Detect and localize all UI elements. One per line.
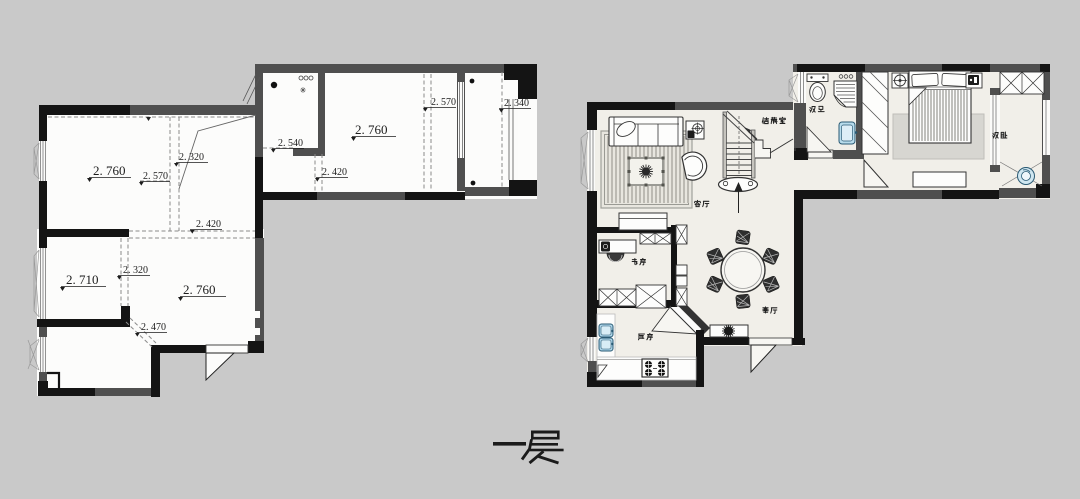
svg-text:2. 760: 2. 760	[183, 282, 216, 297]
svg-text:2. 570: 2. 570	[431, 97, 456, 108]
svg-text:2. 340: 2. 340	[504, 98, 529, 109]
svg-text:2. 570: 2. 570	[143, 171, 168, 182]
svg-text:2. 420: 2. 420	[196, 219, 221, 230]
svg-text:2. 540: 2. 540	[278, 138, 303, 149]
svg-text:2. 470: 2. 470	[141, 322, 166, 333]
svg-text:2. 320: 2. 320	[123, 265, 148, 276]
svg-text:2. 420: 2. 420	[322, 167, 347, 178]
svg-text:2. 710: 2. 710	[66, 272, 99, 287]
svg-text:2. 760: 2. 760	[355, 122, 388, 137]
svg-text:2. 320: 2. 320	[179, 152, 204, 163]
svg-text:2. 760: 2. 760	[93, 163, 126, 178]
